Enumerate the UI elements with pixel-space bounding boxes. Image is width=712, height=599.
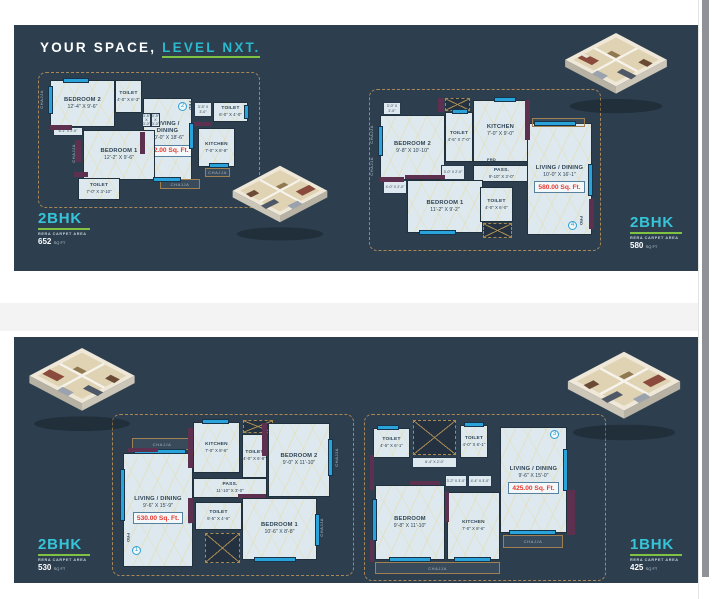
page-title-accent: LEVEL NXT.: [162, 40, 260, 58]
room-dims: 7'-0" X 8'-6": [205, 448, 228, 454]
room-bedroom-2: BEDROOM 2 9'-0" X 11'-10": [268, 423, 330, 497]
room-dims: 4'-5" X 6'-1": [380, 443, 403, 449]
chajja-label: CHAJJA: [369, 157, 374, 176]
room-dims: 10'-0" X 16'-1": [543, 172, 576, 179]
dim-vertical: 6'-5" X 1'-7": [489, 428, 493, 447]
area-value: 530 SQ FT: [38, 563, 108, 572]
room-dims: 10'-0" X 18'-6": [151, 135, 184, 142]
wall-accent: [567, 490, 575, 535]
wall-accent: [194, 122, 212, 126]
rera-note: RERA CARPET AREA: [630, 236, 700, 240]
room-dims: 4'-0" X 6'-3": [117, 97, 140, 103]
panel-top: YOUR SPACE, LEVEL NXT. BEDROOM 2 12'-4" …: [14, 25, 698, 271]
window-strip: [64, 79, 88, 82]
room-name: LIVING / DINING: [510, 466, 557, 473]
apartment-3d-render: [558, 29, 674, 119]
window-strip: [373, 500, 376, 540]
duct-shaft: [205, 533, 240, 563]
duct-shaft: [413, 420, 456, 455]
room-bedroom-2: BEDROOM 2 12'-4" X 9'-6": [50, 80, 115, 127]
area-value: 652 SQ FT: [38, 237, 108, 246]
rera-note: RERA CARPET AREA: [630, 558, 700, 562]
badge-underline: [630, 554, 682, 557]
unit-badge-580: 2BHK RERA CARPET AREA 580 SQ FT: [630, 215, 700, 250]
window-strip: [465, 423, 483, 426]
room-name: LIVING / DINING: [134, 496, 181, 503]
room-dims: 9'-6" X 15'-9": [143, 503, 173, 510]
wall-accent: [74, 172, 88, 177]
dim-box: 3'-2" X 3'-0": [445, 475, 467, 487]
dim-box: 3'-5" X 3'-0": [151, 113, 160, 127]
unit-badge-530: 2BHK RERA CARPET AREA 530 SQ FT: [38, 537, 108, 572]
room-dims: 12'-2" X 9'-6": [104, 155, 134, 162]
area-unit: SQ FT: [54, 566, 66, 571]
window-strip: [49, 87, 52, 113]
window-strip: [535, 122, 575, 125]
prd-label: PRD: [579, 216, 584, 225]
scrollbar-track[interactable]: [698, 0, 712, 599]
prd-label: PRD: [126, 533, 131, 542]
area-number: 530: [38, 563, 51, 572]
panel-bottom: CHAJJA KITCHEN 7'-0" X 8'-6" TOILET 4'-0…: [14, 337, 698, 583]
window-strip: [378, 426, 398, 429]
room-dims: 12'-4" X 9'-6": [68, 104, 98, 111]
wall-accent: [188, 498, 193, 523]
frd-label: FRD: [546, 422, 555, 427]
window-strip: [589, 165, 592, 195]
dim-box: 3'-0" X 2'-0": [383, 102, 401, 115]
area-number: 580: [630, 241, 643, 250]
room-toilet: TOILET 4'-0" X 6'-1": [460, 425, 488, 458]
window-strip: [154, 178, 180, 181]
room-dims: 4'-0" X 6'-0": [485, 205, 508, 211]
area-unit: SQ FT: [54, 240, 66, 245]
window-strip: [510, 531, 555, 534]
window-strip: [203, 420, 228, 423]
window-strip: [329, 440, 332, 475]
dim-box: 6'-4" X 2'-0": [412, 457, 457, 468]
room-dims: 4'-5" X 7'-0": [448, 137, 471, 143]
rera-note: RERA CARPET AREA: [38, 232, 108, 236]
room-toilet: TOILET 7'-0" X 3'-10": [78, 178, 120, 200]
window-strip: [495, 98, 515, 101]
room-toilet: TOILET 4'-5" X 7'-0": [445, 112, 473, 162]
dim-vertical: 9'-4" X 3'-0": [516, 190, 520, 209]
room-bedroom-1: BEDROOM 1 11'-2" X 9'-2": [407, 180, 483, 233]
dim-box: 4'-4" X 3'-0": [468, 475, 492, 487]
room-dims: 11'-10" X 3'-0": [216, 488, 243, 494]
room-dims: 9'-6" X 15'-0": [519, 473, 549, 480]
room-dims: 7'-0" X 9'-0": [487, 131, 514, 138]
unit-number-marker: 2: [178, 102, 187, 111]
carpet-area-value: 530.00 Sq. Ft.: [133, 512, 183, 524]
dim-box: 4'-0" X 2'-0": [383, 180, 407, 194]
wall-accent: [262, 423, 267, 456]
page-title-main: YOUR SPACE,: [40, 40, 162, 55]
chajja-label: CHAJJA: [39, 90, 44, 109]
window-strip: [190, 124, 193, 148]
window-strip: [255, 558, 295, 561]
unit-number-marker: 4: [568, 221, 577, 230]
room-bedroom-2: BEDROOM 2 9'-8" X 10'-10": [380, 115, 445, 180]
wall-accent: [525, 100, 530, 140]
room-name: BEDROOM 1: [261, 522, 298, 529]
apartment-3d-render: [560, 347, 688, 447]
room-dims: 9'-0" X 11'-10": [283, 460, 315, 467]
room-dims: 9'-8" X 10'-10": [396, 148, 429, 155]
wall-accent: [50, 125, 72, 130]
chajja-box: CHAJJA: [375, 562, 500, 574]
window-strip: [379, 127, 382, 155]
wall-accent: [370, 540, 374, 562]
chajja-label: CHAJJA: [319, 518, 324, 537]
wall-accent: [140, 132, 145, 154]
wall-accent: [589, 199, 594, 229]
floor-plan-530: CHAJJA KITCHEN 7'-0" X 8'-6" TOILET 4'-0…: [118, 420, 348, 570]
area-unit: SQ FT: [646, 244, 658, 249]
room-toilet: TOILET 4'-0" X 6'-0": [480, 187, 513, 222]
unit-number-marker: 1: [132, 546, 141, 555]
wall-accent: [128, 448, 158, 452]
room-dims: 4'-0" X 6'-1": [463, 442, 486, 448]
window-strip: [453, 110, 467, 113]
frd-label: FRD: [188, 101, 193, 110]
wall-accent: [370, 455, 374, 490]
rera-note: RERA CARPET AREA: [38, 558, 108, 562]
window-strip: [121, 470, 124, 520]
area-value: 425 SQ FT: [630, 563, 700, 572]
room-toilet: TOILET 6'-0" X 4'-0": [213, 102, 248, 122]
window-strip: [455, 558, 490, 561]
room-dims: 9'-10" X 3'-0": [489, 174, 514, 180]
dim-box: 3'-5" X 3'-0": [142, 113, 151, 127]
room-dims: 10'-6" X 8'-8": [265, 529, 295, 536]
room-living-dining: LIVING / DINING 9'-6" X 15'-0" 425.00 Sq…: [500, 427, 567, 533]
room-kitchen: KITCHEN 7'-0" X 8'-6": [193, 422, 240, 473]
window-strip: [390, 558, 430, 561]
badge-underline: [38, 554, 90, 557]
room-name: BEDROOM 2: [394, 141, 431, 148]
chajja-box: CHAJJA: [503, 535, 563, 548]
room-name: BEDROOM 1: [427, 200, 464, 207]
duct-shaft: [483, 223, 512, 238]
room-name: BEDROOM: [394, 516, 426, 523]
room-dims: 7'-0" X 3'-10": [86, 189, 111, 195]
area-unit: SQ FT: [646, 566, 658, 571]
page-title: YOUR SPACE, LEVEL NXT.: [40, 40, 260, 55]
wall-accent: [410, 481, 440, 485]
room-dims: 5'-5" X 4'-6": [207, 516, 230, 522]
badge-underline: [630, 232, 682, 235]
room-bedroom-1: BEDROOM 1 10'-6" X 8'-8": [242, 498, 317, 560]
wall-accent: [438, 98, 444, 112]
apartment-3d-render: [22, 343, 142, 438]
area-number: 652: [38, 237, 51, 246]
wall-accent: [238, 494, 266, 498]
chajja-label: CHAJJA: [369, 125, 374, 144]
wall-accent: [380, 177, 404, 182]
room-dims: 7'-0" X 8'-6": [462, 526, 485, 532]
divider-band: [0, 303, 698, 331]
window-strip: [420, 231, 455, 234]
wall-accent: [75, 140, 81, 162]
wall-accent: [445, 492, 449, 522]
wall-accent: [188, 428, 193, 468]
frd-label: FRD: [487, 157, 496, 162]
window-strip: [245, 106, 248, 118]
area-value: 580 SQ FT: [630, 241, 700, 250]
unit-badge-652: 2BHK RERA CARPET AREA 652 SQ FT: [38, 211, 108, 246]
room-dims: 11'-2" X 9'-2": [430, 207, 460, 214]
brochure-page: YOUR SPACE, LEVEL NXT. BEDROOM 2 12'-4" …: [0, 0, 712, 599]
floor-plan-652: BEDROOM 2 12'-4" X 9'-6" TOILET 4'-0" X …: [44, 78, 254, 202]
window-strip: [316, 515, 319, 545]
unit-type: 2BHK: [38, 537, 108, 552]
frd-label: FRD: [203, 472, 212, 477]
unit-type: 2BHK: [38, 211, 108, 226]
room-dims: 6'-0" X 4'-0": [219, 112, 242, 118]
room-toilet: TOILET 4'-0" X 6'-3": [115, 80, 142, 113]
room-dims: 7'-0" X 8'-8": [205, 148, 228, 154]
chajja-label: CHAJJA: [334, 448, 339, 467]
room-name: BEDROOM 1: [101, 148, 138, 155]
room-toilet: TOILET 4'-5" X 6'-1": [373, 428, 410, 458]
room-name: LIVING / DINING: [536, 165, 583, 172]
carpet-area-value: 425.00 Sq. Ft.: [508, 482, 558, 494]
scrollbar-thumb[interactable]: [702, 0, 709, 577]
room-bedroom: BEDROOM 9'-8" X 11'-10": [375, 485, 445, 560]
room-kitchen: KITCHEN 7'-0" X 8'-6": [447, 492, 500, 560]
wall-accent: [405, 175, 445, 179]
unit-number-marker: 3: [550, 430, 559, 439]
room-name: KITCHEN: [487, 124, 514, 131]
room-dims: 9'-8" X 11'-10": [394, 523, 426, 530]
badge-underline: [38, 228, 90, 231]
window-strip: [564, 450, 567, 490]
room-dims: 4'-0" X 6'-8": [243, 456, 266, 462]
unit-type: 1BHK: [630, 537, 700, 552]
room-name: BEDROOM 2: [64, 97, 101, 104]
unit-type: 2BHK: [630, 215, 700, 230]
carpet-area-value: 580.00 Sq. Ft.: [534, 181, 584, 193]
apartment-3d-render: [226, 155, 334, 253]
room-kitchen: KITCHEN 7'-0" X 9'-0": [473, 100, 528, 162]
room-name: BEDROOM 2: [281, 453, 318, 460]
unit-badge-425: 1BHK RERA CARPET AREA 425 SQ FT: [630, 537, 700, 572]
room-toilet: TOILET 5'-5" X 4'-6": [195, 502, 242, 530]
dim-box: 3'-5" X 3'-0": [194, 102, 212, 117]
area-number: 425: [630, 563, 643, 572]
